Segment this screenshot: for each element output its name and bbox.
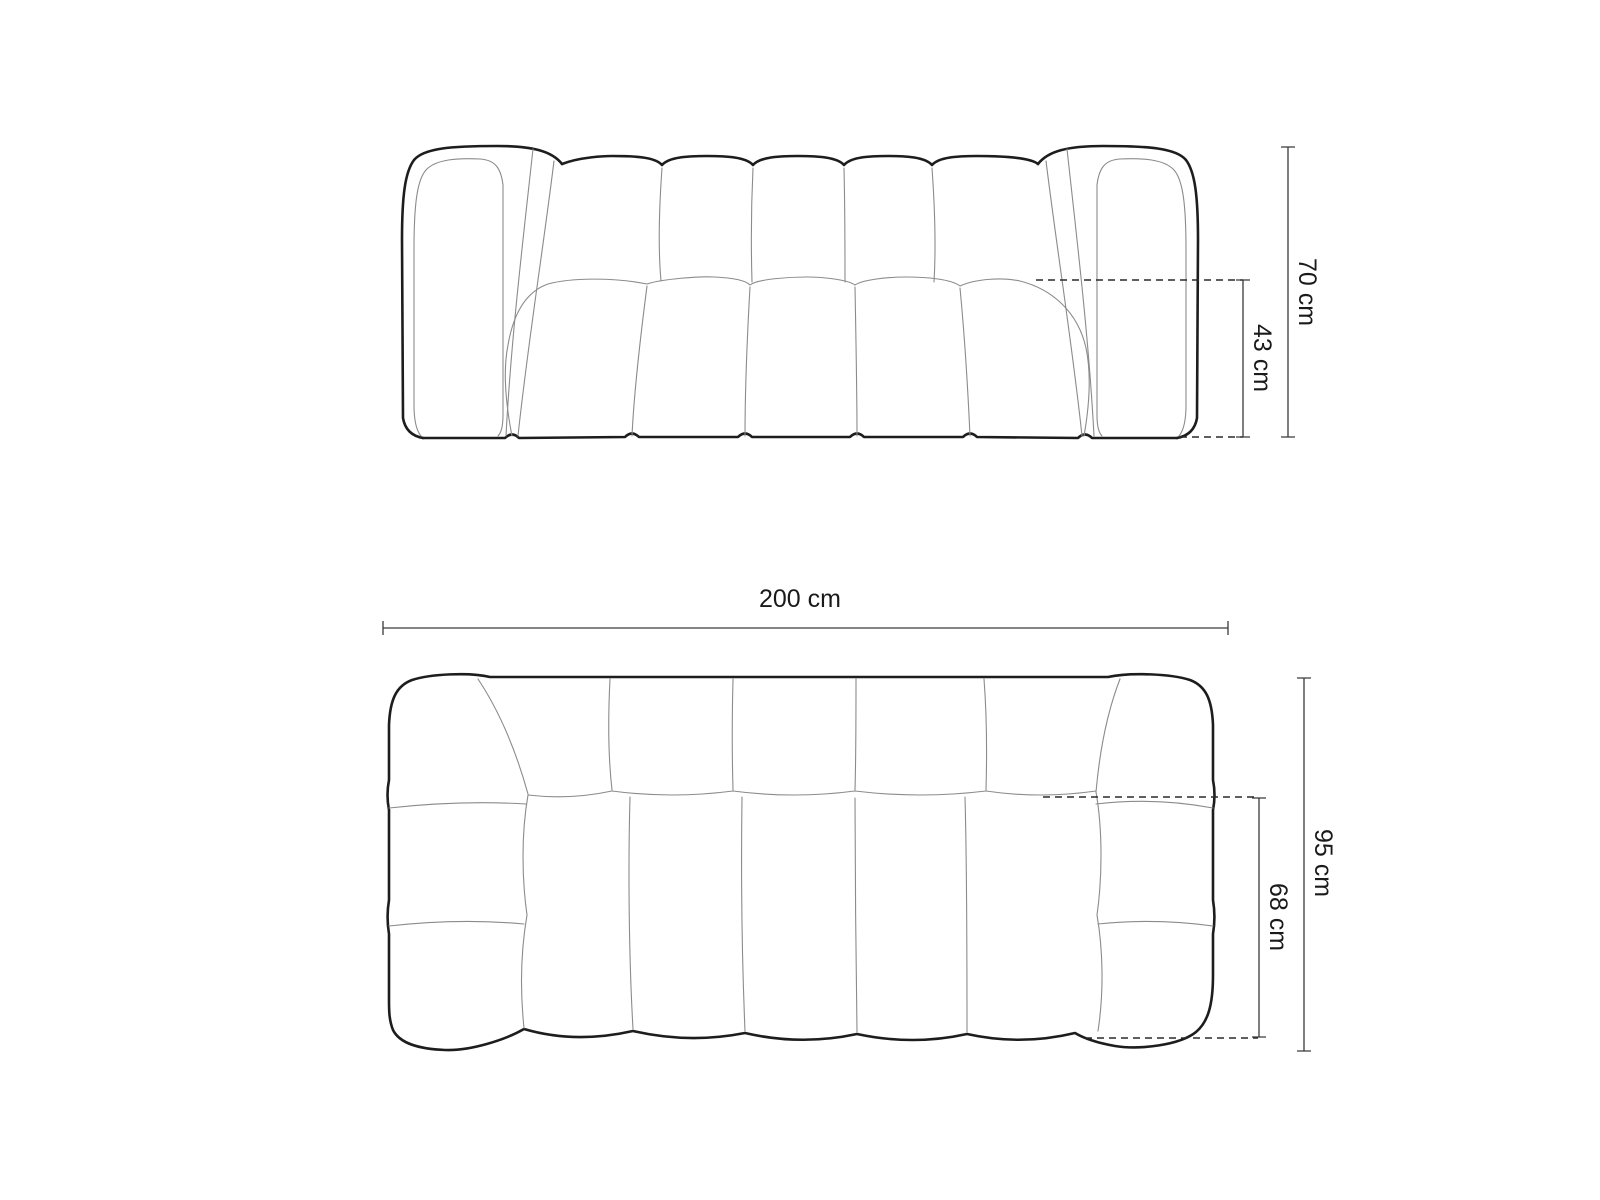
front-back-top-edge: [562, 156, 1038, 165]
plan-back-scallop: [528, 791, 1096, 797]
plan-arm-inner-edges: [522, 792, 1102, 1031]
plan-seat-depth-dimension: 68 cm: [1252, 798, 1292, 1037]
plan-seat-depth-label: 68 cm: [1264, 883, 1292, 951]
plan-total-depth-label: 95 cm: [1309, 829, 1337, 897]
front-right-arm-inner-contour: [1097, 159, 1186, 436]
front-elevation-view: 43 cm 70 cm: [402, 146, 1321, 438]
front-seat-top-scallop: [505, 277, 1089, 436]
front-back-channel-dividers: [659, 168, 935, 282]
front-right-arm-outline: [1038, 146, 1198, 438]
front-left-arm-outline: [402, 146, 562, 438]
front-seat-height-dimension-line: [1236, 280, 1250, 437]
plan-outline: [388, 674, 1215, 1050]
front-left-arm-inner-contour: [414, 159, 503, 436]
front-seat-dividers: [632, 286, 970, 436]
front-right-arm-roll-line-b: [1046, 161, 1082, 436]
front-right-arm-roll-line-a: [1067, 149, 1094, 436]
front-total-height-dimension-line: [1281, 147, 1295, 437]
plan-total-depth-dimension-line: [1297, 678, 1311, 1051]
front-bottom-edge: [423, 434, 1177, 439]
plan-width-dimension-line: [383, 621, 1228, 635]
plan-arm-segment-dividers: [389, 801, 1213, 926]
plan-width-label: 200 cm: [759, 585, 841, 613]
top-plan-view: 200 cm 68 cm 95 cm: [383, 585, 1337, 1051]
front-seat-height-dimension: 43 cm: [1236, 280, 1276, 437]
plan-back-dividers: [478, 679, 1120, 794]
front-total-height-dimension: 70 cm: [1281, 147, 1321, 437]
drawing-svg: 43 cm 70 cm 200 cm 68: [0, 0, 1600, 1200]
plan-total-depth-dimension: 95 cm: [1297, 678, 1337, 1051]
front-total-height-label: 70 cm: [1293, 258, 1321, 326]
front-seat-height-label: 43 cm: [1248, 324, 1276, 392]
front-left-arm-roll-line-a: [506, 149, 533, 436]
plan-width-dimension: 200 cm: [383, 585, 1228, 635]
plan-seat-depth-dimension-line: [1252, 798, 1266, 1037]
sofa-dimension-drawing: 43 cm 70 cm 200 cm 68: [0, 0, 1600, 1200]
plan-seat-dividers: [629, 797, 967, 1032]
front-left-arm-roll-line-b: [518, 161, 554, 436]
